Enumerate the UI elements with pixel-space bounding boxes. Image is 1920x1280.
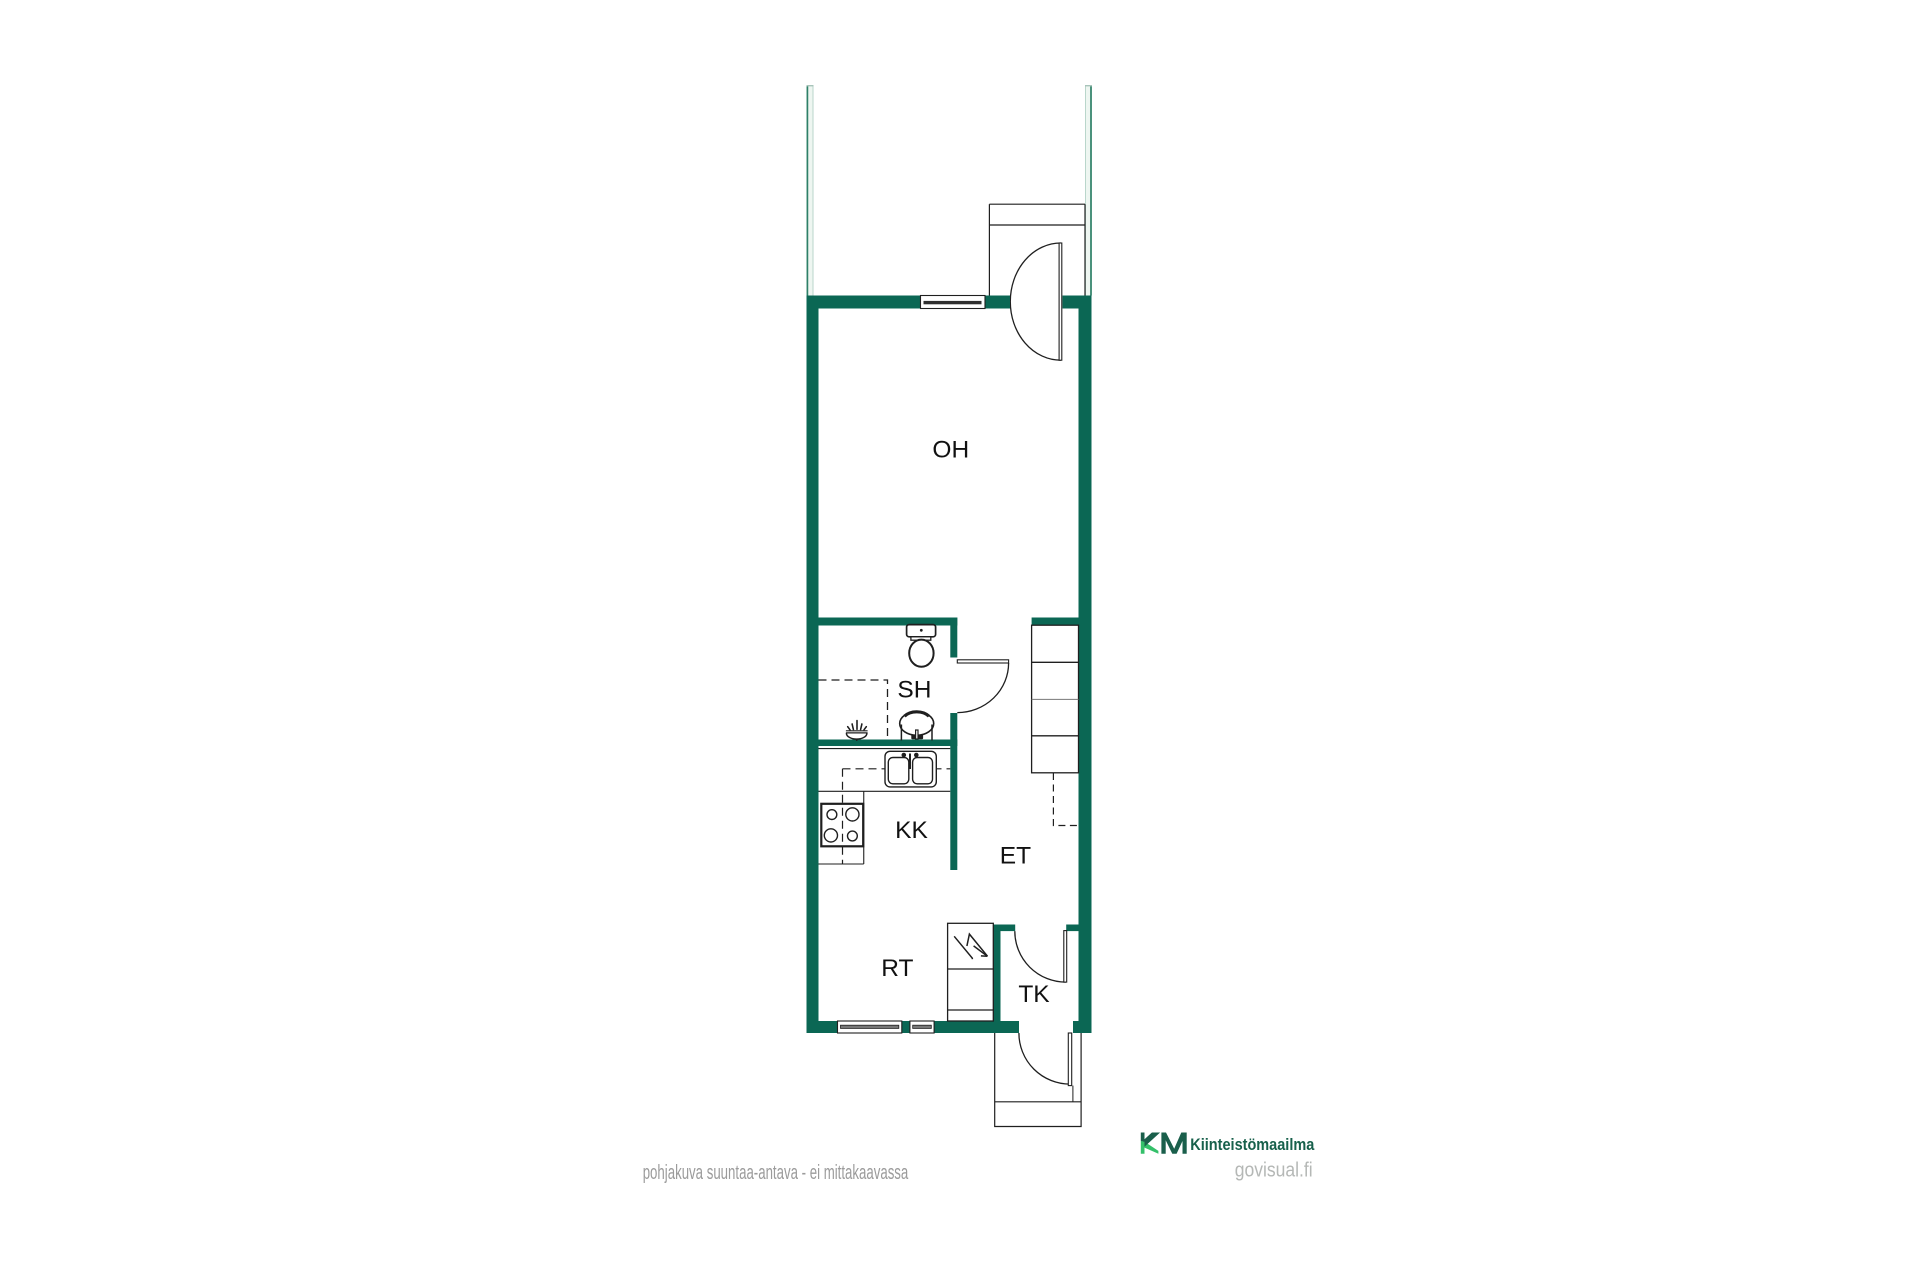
- svg-text:SH: SH: [897, 677, 931, 704]
- svg-text:govisual.fi: govisual.fi: [1235, 1159, 1313, 1181]
- svg-text:Kiinteistömaailma: Kiinteistömaailma: [1190, 1135, 1314, 1154]
- svg-text:TK: TK: [1018, 981, 1050, 1008]
- svg-text:OH: OH: [932, 437, 969, 464]
- svg-text:KK: KK: [895, 817, 928, 844]
- svg-text:ET: ET: [1000, 842, 1031, 869]
- svg-text:RT: RT: [881, 955, 913, 982]
- svg-text:pohjakuva suuntaa-antava - ei: pohjakuva suuntaa-antava - ei mittakaava…: [643, 1162, 909, 1184]
